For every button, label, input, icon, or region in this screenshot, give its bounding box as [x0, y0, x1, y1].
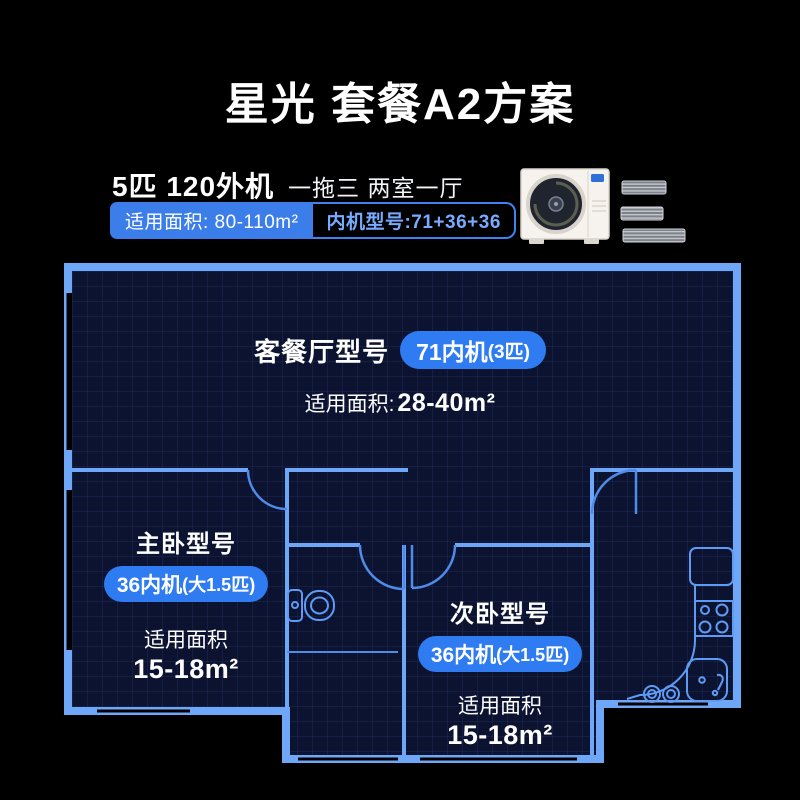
master-bedroom-model-badge: 36内机 (大1.5匹)	[104, 566, 268, 602]
badge-spec-text: (3匹)	[488, 337, 530, 364]
brand-logo	[591, 174, 604, 182]
area-label: 适用面积:	[305, 388, 395, 418]
master-bedroom-label-block: 主卧型号 36内机 (大1.5匹) 适用面积 15-18m²	[86, 524, 286, 685]
outdoor-unit-icon	[521, 169, 609, 244]
product-spec-row: 5匹 120外机 一拖三 两室一厅	[112, 165, 463, 205]
window-left-master	[67, 490, 73, 650]
indoor-units-icon	[621, 181, 685, 242]
area-label: 适用面积	[144, 624, 228, 654]
info-bar: 适用面积: 80-110m² 内机型号:71+36+36	[110, 202, 516, 239]
second-bedroom-name: 次卧型号	[450, 594, 550, 629]
indoor-models-tag: 内机型号:71+36+36	[313, 202, 515, 239]
indoor-unit-bar-1	[622, 181, 666, 194]
window-left-living	[67, 293, 73, 450]
promo-page: { "colors": { "bg": "#000000", "plan": "…	[0, 0, 800, 800]
living-room-label-row: 客餐厅型号 71内机 (3匹)	[180, 331, 620, 369]
window-bottom-kitchen	[618, 703, 708, 706]
area-value: 28-40m²	[397, 389, 495, 418]
ac-unit-image	[518, 163, 710, 249]
second-bedroom-label-block: 次卧型号 36内机 (大1.5匹) 适用面积 15-18m²	[400, 594, 600, 751]
badge-model-text: 36内机	[117, 569, 182, 599]
applicable-area-tag: 适用面积: 80-110m²	[110, 202, 313, 239]
badge-model-text: 71内机	[416, 333, 488, 367]
window-bottom-second	[420, 758, 577, 761]
indoor-unit-bar-2	[621, 207, 663, 220]
master-bedroom-name: 主卧型号	[136, 524, 236, 559]
badge-model-text: 36内机	[431, 639, 496, 669]
area-value: 15-18m²	[133, 654, 239, 685]
capacity-text: 5匹 120外机	[112, 165, 274, 205]
window-bottom-master	[97, 710, 190, 713]
living-room-area-row: 适用面积: 28-40m²	[250, 388, 550, 418]
badge-spec-text: (大1.5匹)	[496, 641, 569, 667]
living-room-model-badge: 71内机 (3匹)	[400, 331, 546, 369]
living-room-name: 客餐厅型号	[254, 332, 389, 369]
indoor-unit-bar-3	[623, 229, 685, 242]
page-title: 星光 套餐A2方案	[0, 68, 800, 132]
badge-spec-text: (大1.5匹)	[182, 571, 255, 597]
window-bottom-bath	[298, 758, 398, 761]
area-label: 适用面积	[458, 690, 542, 720]
area-value: 15-18m²	[447, 720, 553, 751]
layout-text: 一拖三 两室一厅	[288, 169, 463, 203]
second-bedroom-model-badge: 36内机 (大1.5匹)	[418, 636, 582, 672]
